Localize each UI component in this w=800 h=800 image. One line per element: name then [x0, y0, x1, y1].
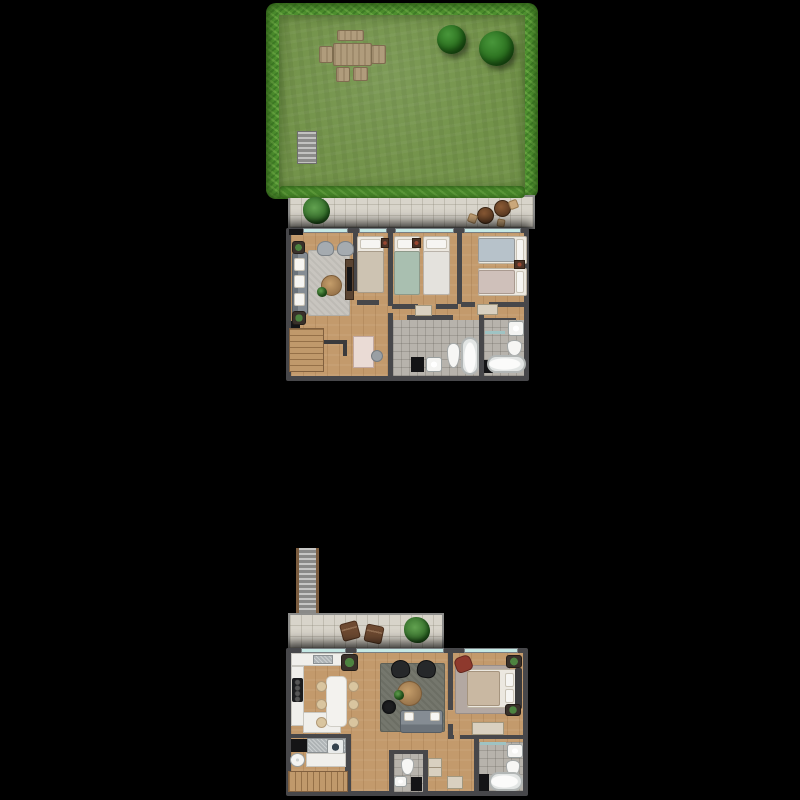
bed-pillow-1 [505, 673, 514, 687]
terrace-plant [404, 617, 430, 643]
floorplan-canvas [0, 0, 800, 800]
bedroom-wardrobe [472, 722, 504, 735]
washing-machine [327, 739, 344, 754]
laundry-counter-white [306, 753, 346, 767]
hall-stairs [288, 771, 348, 792]
bed-headboard [515, 668, 522, 709]
dining-chair-4 [348, 681, 359, 692]
laundry-counter-black [291, 739, 307, 752]
wall-bedroom-bottom [460, 735, 528, 739]
wc-sink [394, 776, 407, 787]
corridor-wardrobe-1 [428, 758, 442, 777]
corridor-wardrobe-2 [447, 776, 463, 789]
dining-chair-5 [348, 699, 359, 710]
living-pouf [382, 700, 396, 714]
dining-chair-6 [348, 717, 359, 728]
laundry-sink [290, 753, 305, 767]
wc-door-mark [411, 777, 422, 791]
nightstand-plant-top [506, 655, 522, 668]
dining-chair-2 [316, 699, 327, 710]
dining-table [326, 676, 347, 727]
exterior-stairs [296, 548, 319, 615]
living-window [356, 648, 444, 653]
bath-door-mark [479, 774, 489, 791]
coffee-table-plant [394, 690, 404, 700]
wall-living-bedroom [448, 653, 453, 710]
bed-pillow-2 [505, 689, 514, 703]
bedroom-window [464, 648, 518, 653]
dining-chair-1 [316, 681, 327, 692]
sofa-pillow-2 [430, 712, 440, 721]
kitchen-sink [313, 655, 333, 664]
lower-floor-plan [0, 0, 800, 800]
bath-sink [507, 744, 523, 758]
bath-shower-glass [480, 742, 506, 745]
kitchen-plant-stand [341, 654, 358, 671]
kitchen-cooktop [292, 678, 303, 702]
dining-chair-3 [316, 717, 327, 728]
wall-bedroom-bottom-stub [448, 735, 454, 739]
nightstand-plant-bottom [505, 704, 521, 716]
bath-bathtub [489, 772, 523, 791]
sofa-pillow-1 [404, 712, 414, 721]
bed-blanket [467, 671, 500, 706]
terrace-chair-2 [363, 623, 384, 644]
